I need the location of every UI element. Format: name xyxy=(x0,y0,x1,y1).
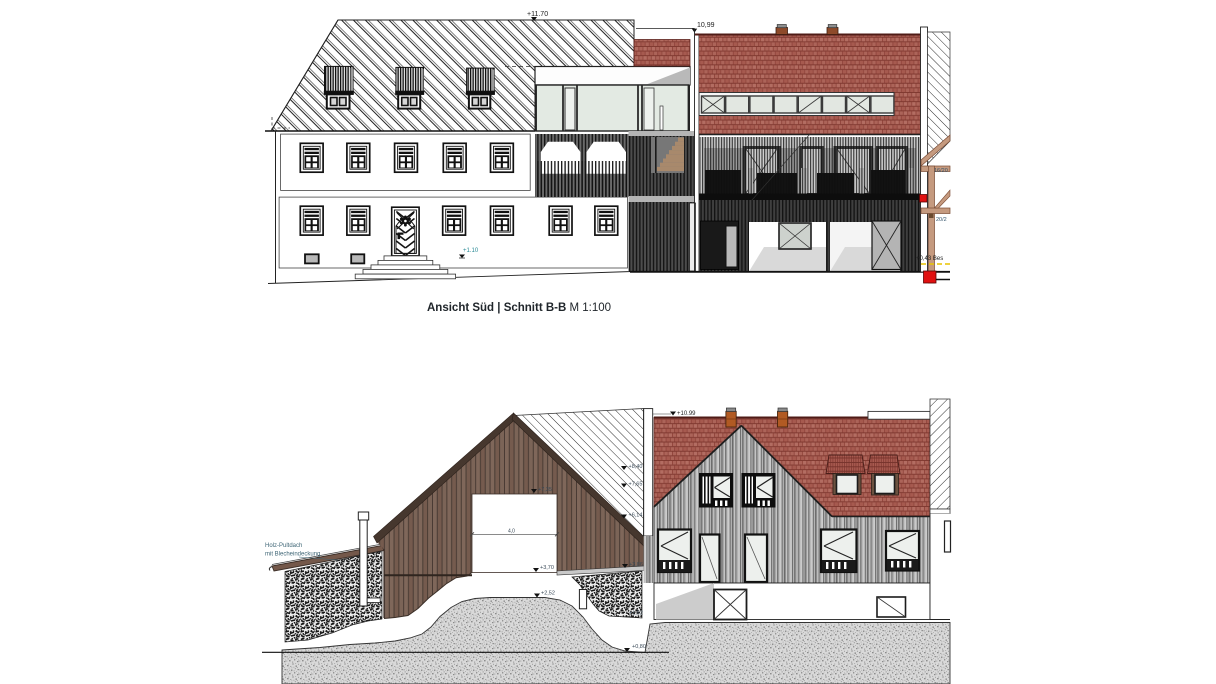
svg-text:+6,14: +6,14 xyxy=(629,513,643,519)
svg-text:+8,40: +8,40 xyxy=(629,464,643,470)
svg-text:+3,70: +3,70 xyxy=(540,565,554,571)
svg-text:Ansicht Süd | Schnitt B-B M 1:: Ansicht Süd | Schnitt B-B M 1:100 xyxy=(427,302,611,314)
svg-text:+3,86: +3,86 xyxy=(629,562,643,568)
svg-text:+11.70: +11.70 xyxy=(527,11,548,18)
svg-text:4,0: 4,0 xyxy=(508,529,515,535)
svg-text:+1.10: +1.10 xyxy=(463,248,479,254)
svg-text:+7,35: +7,35 xyxy=(538,487,552,493)
svg-text:16/20: 16/20 xyxy=(934,168,948,174)
svg-text:+0,43 Bes: +0,43 Bes xyxy=(916,256,943,262)
svg-text:+0,80: +0,80 xyxy=(632,644,646,650)
svg-text:+7,65: +7,65 xyxy=(629,482,643,488)
svg-text:mit Blecheindeckung: mit Blecheindeckung xyxy=(265,552,320,558)
svg-text:20/2: 20/2 xyxy=(936,217,947,223)
svg-text:+1,52: +1,52 xyxy=(629,611,643,617)
svg-text:+10.99: +10.99 xyxy=(677,411,696,417)
svg-text:10,99: 10,99 xyxy=(697,22,715,29)
svg-text:Holz-Pultdach: Holz-Pultdach xyxy=(265,543,302,549)
svg-text:+2,52: +2,52 xyxy=(541,591,555,597)
